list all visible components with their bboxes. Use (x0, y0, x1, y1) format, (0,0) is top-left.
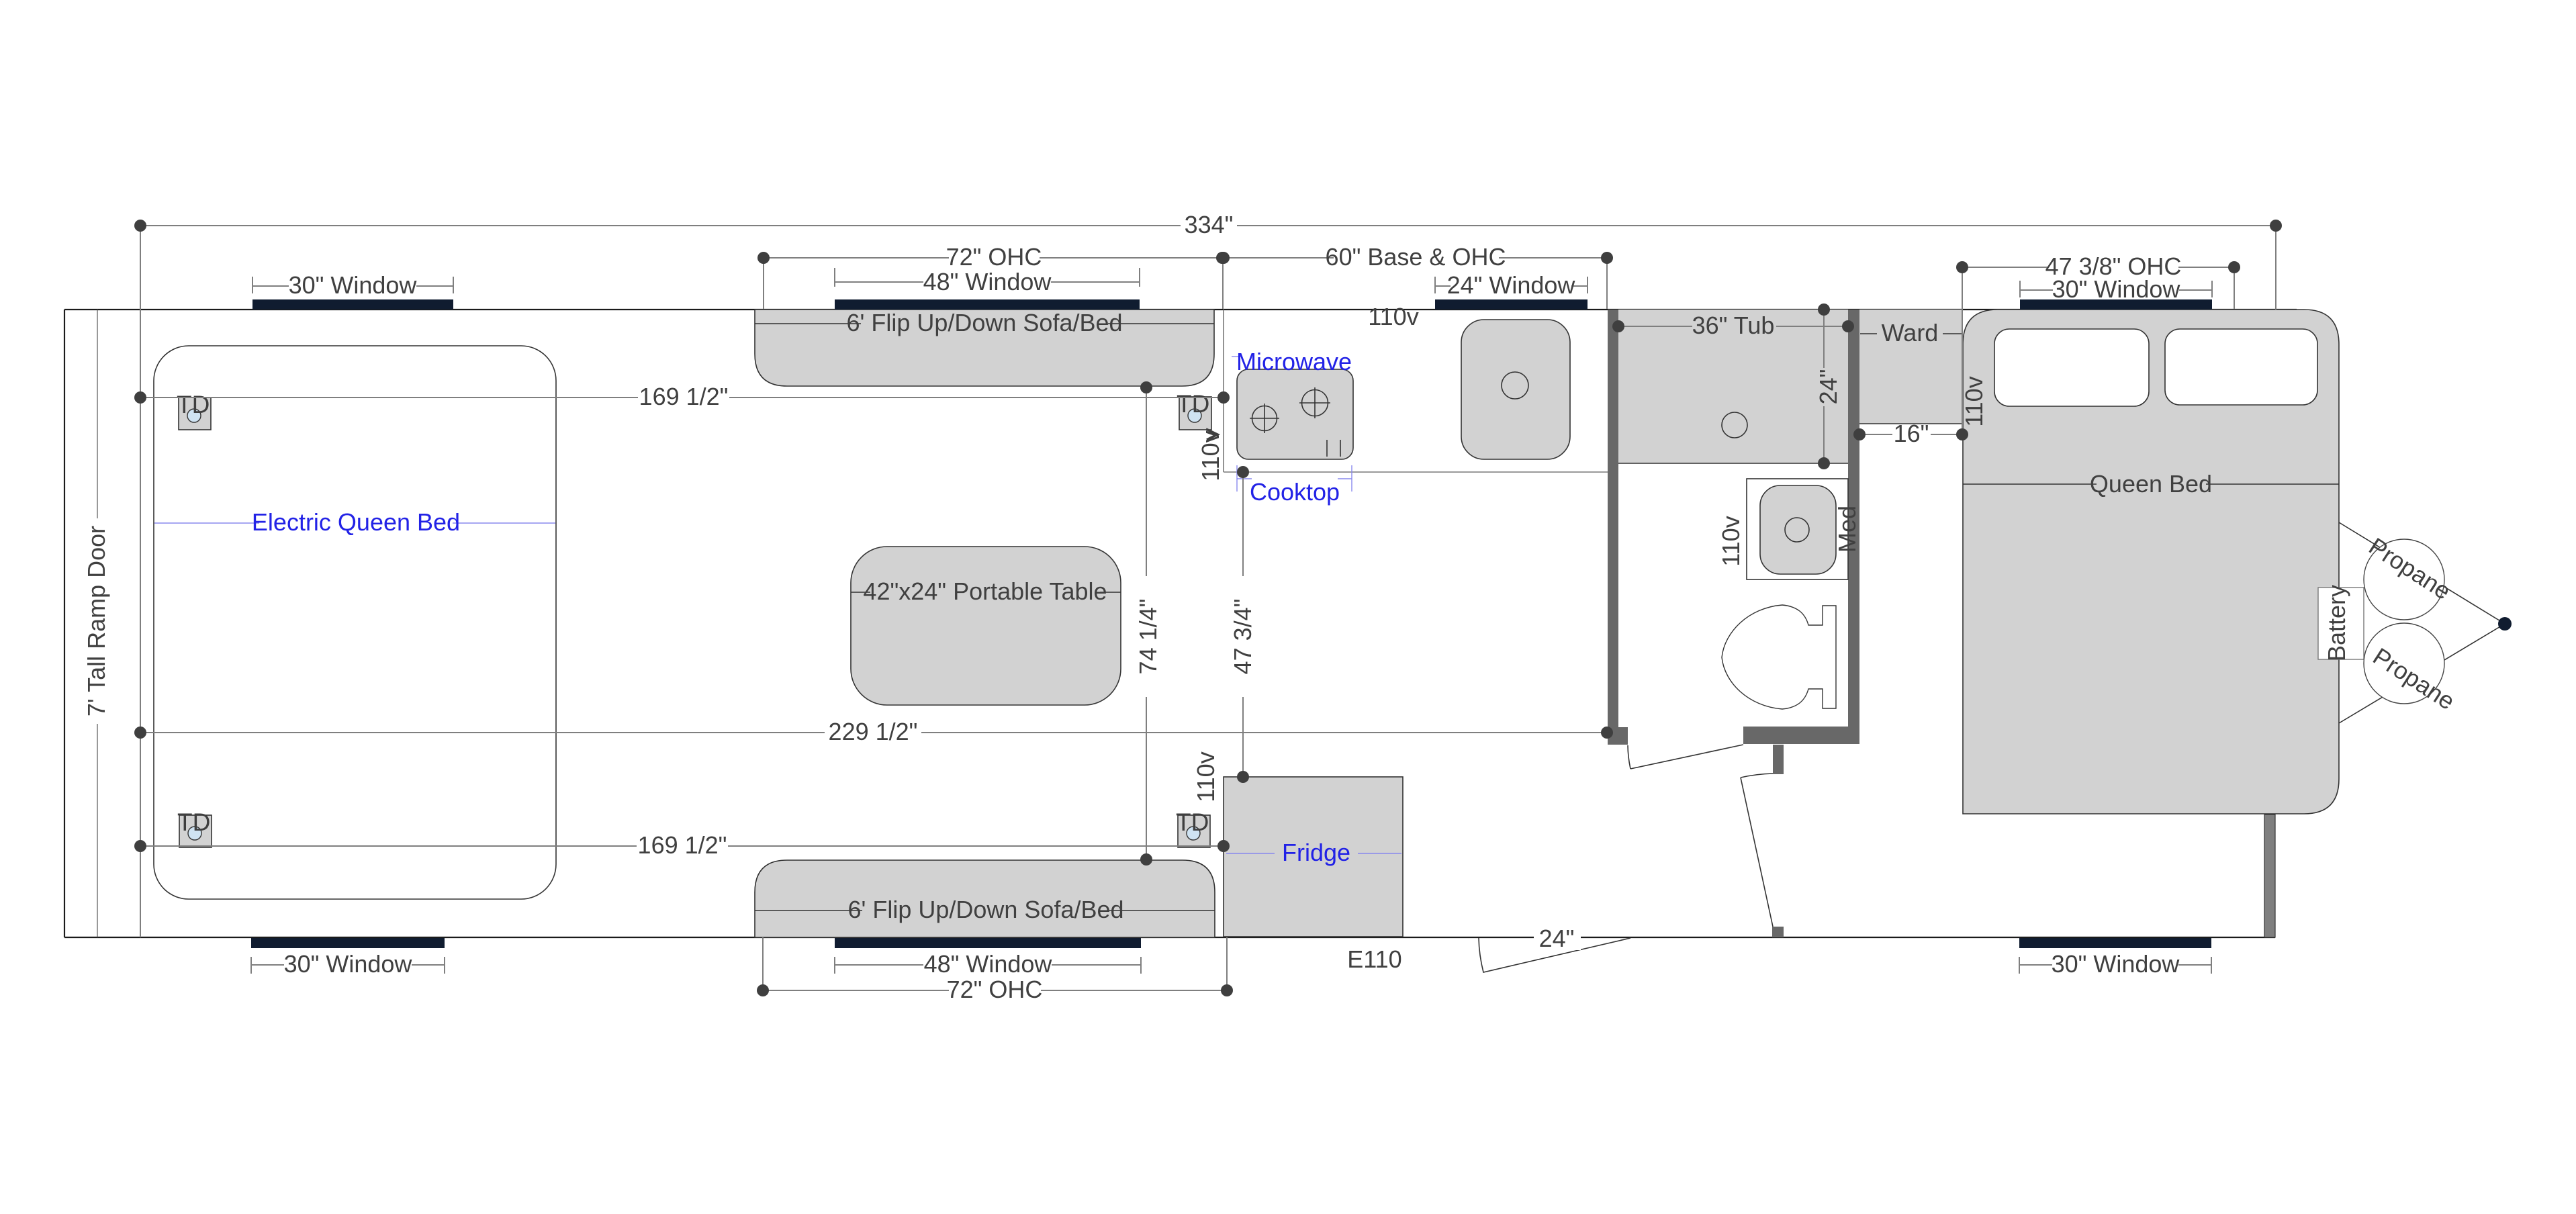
svg-text:169 1/2": 169 1/2" (638, 831, 727, 859)
svg-text:30" Window: 30" Window (284, 950, 413, 978)
svg-text:TD: TD (1176, 808, 1209, 836)
svg-text:30" Window: 30" Window (2052, 950, 2180, 978)
svg-text:110v: 110v (1197, 430, 1224, 481)
svg-text:47 3/4": 47 3/4" (1229, 599, 1256, 675)
svg-text:TD: TD (1177, 390, 1209, 418)
svg-text:TD: TD (177, 391, 210, 418)
svg-text:47 3/8" OHC: 47 3/8" OHC (2045, 252, 2182, 280)
svg-text:Battery: Battery (2323, 585, 2350, 661)
svg-text:Med: Med (1833, 506, 1861, 553)
svg-text:6' Flip Up/Down Sofa/Bed: 6' Flip Up/Down Sofa/Bed (846, 309, 1122, 336)
svg-text:Fridge: Fridge (1282, 839, 1350, 866)
svg-text:60" Base & OHC: 60" Base & OHC (1326, 243, 1506, 271)
svg-text:24": 24" (1539, 925, 1575, 952)
svg-text:E110: E110 (1347, 945, 1401, 973)
svg-text:334": 334" (1185, 211, 1234, 238)
svg-text:TD: TD (177, 808, 210, 836)
svg-text:7' Tall Ramp Door: 7' Tall Ramp Door (83, 526, 110, 716)
svg-text:36" Tub: 36" Tub (1692, 312, 1775, 339)
svg-text:48" Window: 48" Window (924, 950, 1053, 978)
svg-text:Ward: Ward (1882, 319, 1939, 346)
svg-text:110v: 110v (1192, 751, 1220, 802)
svg-text:24" Window: 24" Window (1447, 271, 1576, 299)
svg-text:110v: 110v (1368, 303, 1418, 330)
svg-text:72" OHC: 72" OHC (947, 976, 1043, 1003)
svg-text:48" Window: 48" Window (923, 268, 1052, 295)
svg-text:74 1/4": 74 1/4" (1134, 599, 1162, 675)
svg-text:110v: 110v (1960, 376, 1988, 426)
svg-text:Cooktop: Cooktop (1250, 478, 1340, 506)
svg-text:169 1/2": 169 1/2" (639, 383, 729, 410)
svg-text:Microwave: Microwave (1236, 348, 1352, 375)
svg-text:72" OHC: 72" OHC (946, 243, 1042, 271)
svg-text:Electric Queen Bed: Electric Queen Bed (252, 508, 460, 536)
svg-text:42"x24" Portable Table: 42"x24" Portable Table (863, 577, 1107, 605)
svg-text:16": 16" (1894, 420, 1929, 447)
svg-text:Queen Bed: Queen Bed (2090, 470, 2212, 498)
svg-text:24": 24" (1814, 369, 1842, 405)
svg-text:110v: 110v (1717, 516, 1745, 566)
svg-text:6' Flip Up/Down Sofa/Bed: 6' Flip Up/Down Sofa/Bed (847, 896, 1123, 923)
svg-text:30" Window: 30" Window (289, 271, 418, 299)
svg-text:229 1/2": 229 1/2" (829, 718, 918, 745)
